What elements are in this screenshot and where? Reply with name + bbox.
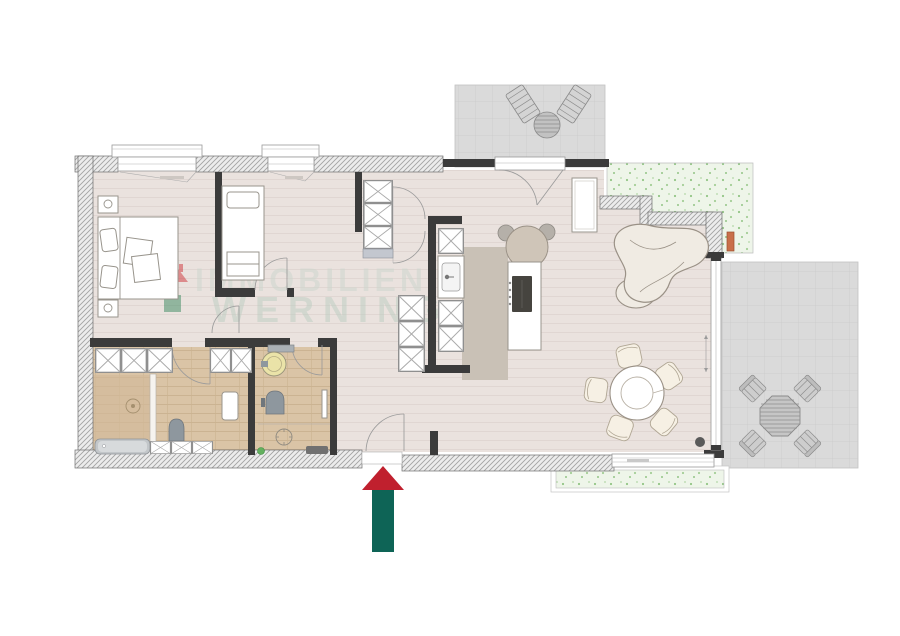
jamb-bedroom2-door <box>287 288 294 297</box>
kitchen-island-icon <box>508 262 541 350</box>
kitchen-base-unit <box>439 229 464 254</box>
dining-table-icon <box>610 366 664 420</box>
wall-kitchen-cap-bottom <box>422 365 470 373</box>
floor-plan-canvas: IMMOBILIEN WERNING <box>0 0 900 636</box>
bedroom-second <box>222 186 264 280</box>
floor-spot-icon <box>695 437 705 447</box>
wall-bath-guest-top-2 <box>318 338 330 347</box>
kitchen-base-unit <box>439 327 464 352</box>
right-terrace <box>722 262 858 468</box>
dining-chair-icon <box>583 377 608 404</box>
vanity-unit <box>172 441 192 453</box>
basin-tap-icon <box>261 361 268 367</box>
wall-top-2 <box>196 156 268 172</box>
bath-mat-icon <box>306 446 328 454</box>
kitchen-tall-unit <box>364 181 393 203</box>
single-bed-icon <box>222 186 264 280</box>
vanity-unit <box>151 441 171 453</box>
plant-icon <box>258 448 265 455</box>
wall-entrance-stub <box>430 431 438 455</box>
entrance-threshold <box>362 452 402 464</box>
kitchen-floor-zone <box>462 247 508 380</box>
wall-kitchen-cap-top <box>428 216 462 224</box>
garden-bed-bottom <box>556 470 724 488</box>
terrace-round-table-icon <box>534 112 560 138</box>
double-bed-icon <box>98 217 178 299</box>
wall-step-c <box>648 212 714 225</box>
wardrobe-unit <box>96 349 121 373</box>
radiator-icon <box>268 345 294 352</box>
sideboard-icon <box>572 178 597 232</box>
dimension-label <box>285 176 303 179</box>
nightstand-icon <box>98 300 118 317</box>
wall-bedroom2-kitchen <box>355 172 362 232</box>
kitchen-base-unit <box>439 301 464 326</box>
dimension-label <box>160 176 184 179</box>
top-terrace <box>455 84 605 167</box>
kitchen-sink-icon <box>438 256 464 298</box>
wall-bottom-2 <box>402 455 614 471</box>
bath-bench-icon <box>222 392 238 420</box>
wardrobe-unit <box>232 349 252 373</box>
right-terrace-tiles <box>722 262 858 468</box>
bathtub-icon <box>95 439 150 454</box>
wardrobe-unit <box>211 349 231 373</box>
kitchen-tall-unit <box>364 204 393 226</box>
wall-left <box>78 156 93 462</box>
kitchen-base-unit <box>399 296 425 321</box>
dimension-label <box>627 459 649 462</box>
wall-lintel-1 <box>443 159 495 167</box>
wardrobe-unit <box>148 349 173 373</box>
wall-bath-main-top-2 <box>205 338 255 347</box>
wall-bath-guest-right <box>330 338 337 455</box>
wall-bedrooms-divider <box>215 172 222 293</box>
kitchen-counter <box>363 249 393 258</box>
watermark-logo-chimney-icon <box>179 264 183 272</box>
wall-bedroom2-bottom <box>215 288 255 297</box>
dining-chair-icon <box>615 343 643 370</box>
shelf-icon <box>322 390 327 418</box>
living-window-bottom <box>612 454 714 467</box>
wall-top-3 <box>314 156 443 172</box>
shower-glass-panel <box>150 374 156 442</box>
kitchen-base-unit <box>399 322 425 347</box>
kitchen-base-unit <box>399 348 425 372</box>
patio-table-icon <box>760 396 800 436</box>
entrance-arrow <box>362 466 404 552</box>
arrow-head-icon <box>362 466 404 490</box>
wardrobe-unit <box>122 349 147 373</box>
flush-plate-icon <box>261 398 265 407</box>
nightstand-icon <box>98 196 118 213</box>
kitchen-tall-unit <box>364 227 393 249</box>
shower-drain-dot <box>131 404 135 408</box>
wall-kitchen <box>428 216 436 372</box>
planter-icon <box>727 232 734 251</box>
vanity-unit <box>193 441 213 453</box>
toilet-icon <box>169 419 184 441</box>
arrow-shaft-icon <box>372 490 394 552</box>
shower-floor-zone <box>93 375 150 441</box>
wall-bath-main-top-1 <box>90 338 172 347</box>
wall-lintel-2 <box>565 159 609 167</box>
